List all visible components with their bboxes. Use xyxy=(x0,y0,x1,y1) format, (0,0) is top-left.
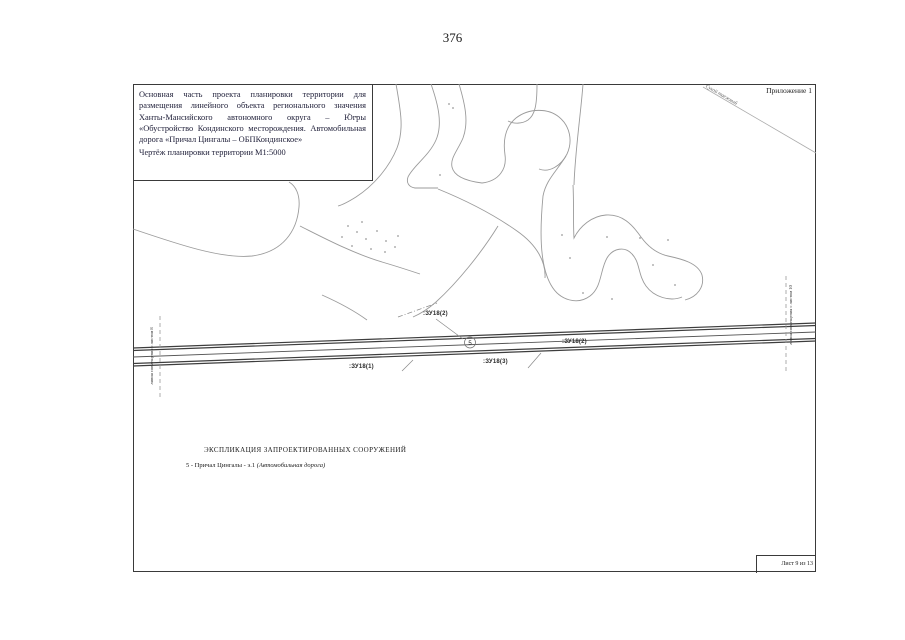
title-paragraph: Основная часть проекта планировки террит… xyxy=(139,89,366,145)
parcel-label: :ЗУ18(1) xyxy=(349,364,374,370)
parcel-label: :ЗУ18(3) xyxy=(483,359,508,365)
meander-lower xyxy=(541,156,682,301)
vegetation-dots xyxy=(341,103,676,300)
meander-feeder xyxy=(574,84,583,185)
sheet-number-cell: Лист 9 из 13 xyxy=(756,555,816,573)
meander-upper xyxy=(573,185,703,300)
legend-item-note: (Автомобильная дорога) xyxy=(257,462,325,469)
legend-item-name: Причал Цингалы - э.1 xyxy=(195,462,255,469)
channel-right-edge xyxy=(452,84,482,183)
legend-item-number: 5 xyxy=(186,462,189,469)
legend-header: ЭКСПЛИКАЦИЯ ЗАПРОЕКТИРОВАННЫХ СООРУЖЕНИЙ xyxy=(204,446,606,454)
title-block: Основная часть проекта планировки террит… xyxy=(133,84,373,181)
legend-item-separator: - xyxy=(191,462,193,469)
match-line-label-right: линия совмещения с листом 10 xyxy=(789,270,794,360)
channel-left-edge xyxy=(407,84,439,188)
road-marker-number: 5 xyxy=(468,341,472,347)
match-line-label-left: линия совмещения с листом 8 xyxy=(150,311,155,401)
contour-left-sweep xyxy=(300,226,420,274)
title-scale-line: Чертёж планировки территории М1:5000 xyxy=(139,147,366,158)
road-lines xyxy=(133,323,816,366)
contour-left-low xyxy=(322,295,367,320)
parcel-label: :ЗУ18(2) xyxy=(562,339,587,345)
contour-hook-top xyxy=(508,84,537,123)
legend-item: 5 - Причал Цингалы - э.1 (Автомобильная … xyxy=(186,462,606,469)
channel-branch-down xyxy=(413,226,498,317)
parcel-label: :ЗУ18(2) xyxy=(423,311,448,317)
channel-band-right xyxy=(438,189,545,278)
contour-left-u xyxy=(133,182,299,256)
legend: ЭКСПЛИКАЦИЯ ЗАПРОЕКТИРОВАННЫХ СООРУЖЕНИЙ… xyxy=(186,446,606,469)
document-page: 376 xyxy=(0,0,905,640)
